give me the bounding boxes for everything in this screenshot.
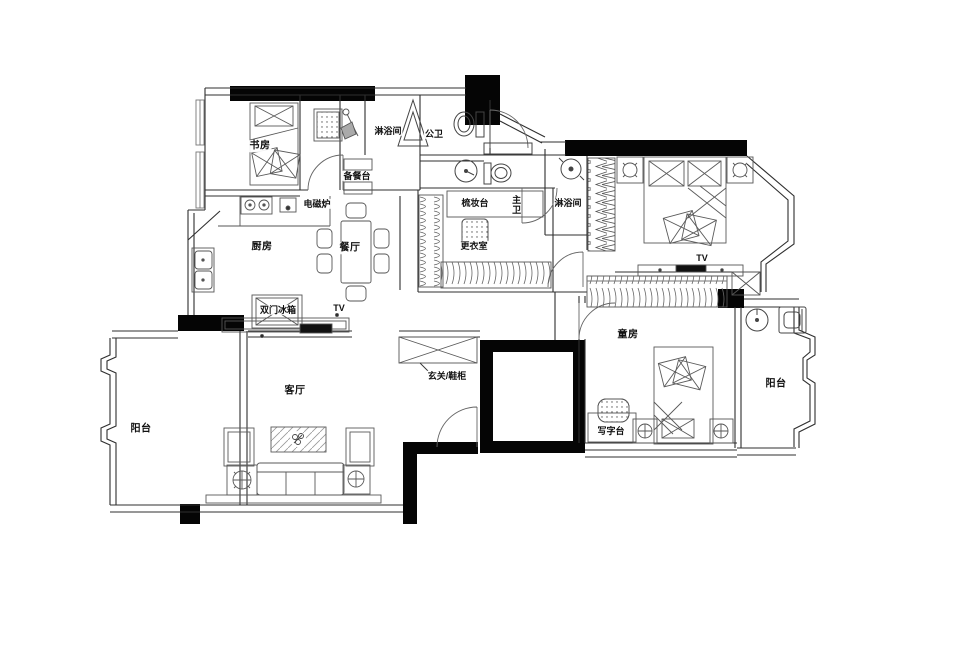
room-label-walkin-closet: 更衣室 [459,241,488,251]
master-nightstands [617,157,753,183]
balcony-basin-icon [746,309,768,331]
label-living-tv: TV [332,303,346,313]
room-label-dining: 餐厅 [339,242,362,254]
room-label-shower-right: 淋浴间 [553,198,582,208]
room-label-study: 书房 [249,140,272,152]
kids-wardrobe [587,276,727,307]
room-label-master-wc: 主卫 [511,194,521,216]
washing-machine-icon [779,307,806,333]
master-bed [644,157,726,246]
label-foyer: 玄关/鞋柜 [427,371,468,381]
kitchen-sink [192,248,214,292]
room-label-balcony-right: 阳台 [765,378,788,390]
sofa-set [206,427,381,503]
room-label-kitchen: 厨房 [251,241,274,253]
floor-plan: 书房 淋浴间 公卫 备餐台 电磁炉 厨房 餐厅 梳妆台 主卫 更衣室 淋浴间 T… [0,0,960,647]
floor-plan-drawing [0,0,960,647]
room-label-shower-top: 淋浴间 [373,126,402,136]
shower-right-head-icon [559,158,584,180]
master-tv-cabinet [638,265,743,276]
label-induction-cooker: 电磁炉 [302,199,331,209]
kids-bed [654,347,713,444]
room-label-guest-wc: 公卫 [424,129,444,139]
label-master-tv: TV [695,253,709,263]
master-bath-fixtures [455,143,532,184]
label-prep-counter: 备餐台 [342,171,371,181]
room-label-living: 客厅 [284,385,307,397]
cleaning-tools-icon [341,109,358,139]
label-vanity: 梳妆台 [460,198,489,208]
ac-cabinet [732,272,760,295]
shoe-cabinet [399,337,477,371]
label-fridge: 双门冰箱 [259,305,297,315]
room-label-balcony-left: 阳台 [130,423,153,435]
washer-icon [314,109,342,141]
room-label-kids: 童房 [617,329,640,341]
master-closet-strip [588,158,615,251]
label-desk: 写字台 [596,426,625,436]
study-window [196,100,204,208]
